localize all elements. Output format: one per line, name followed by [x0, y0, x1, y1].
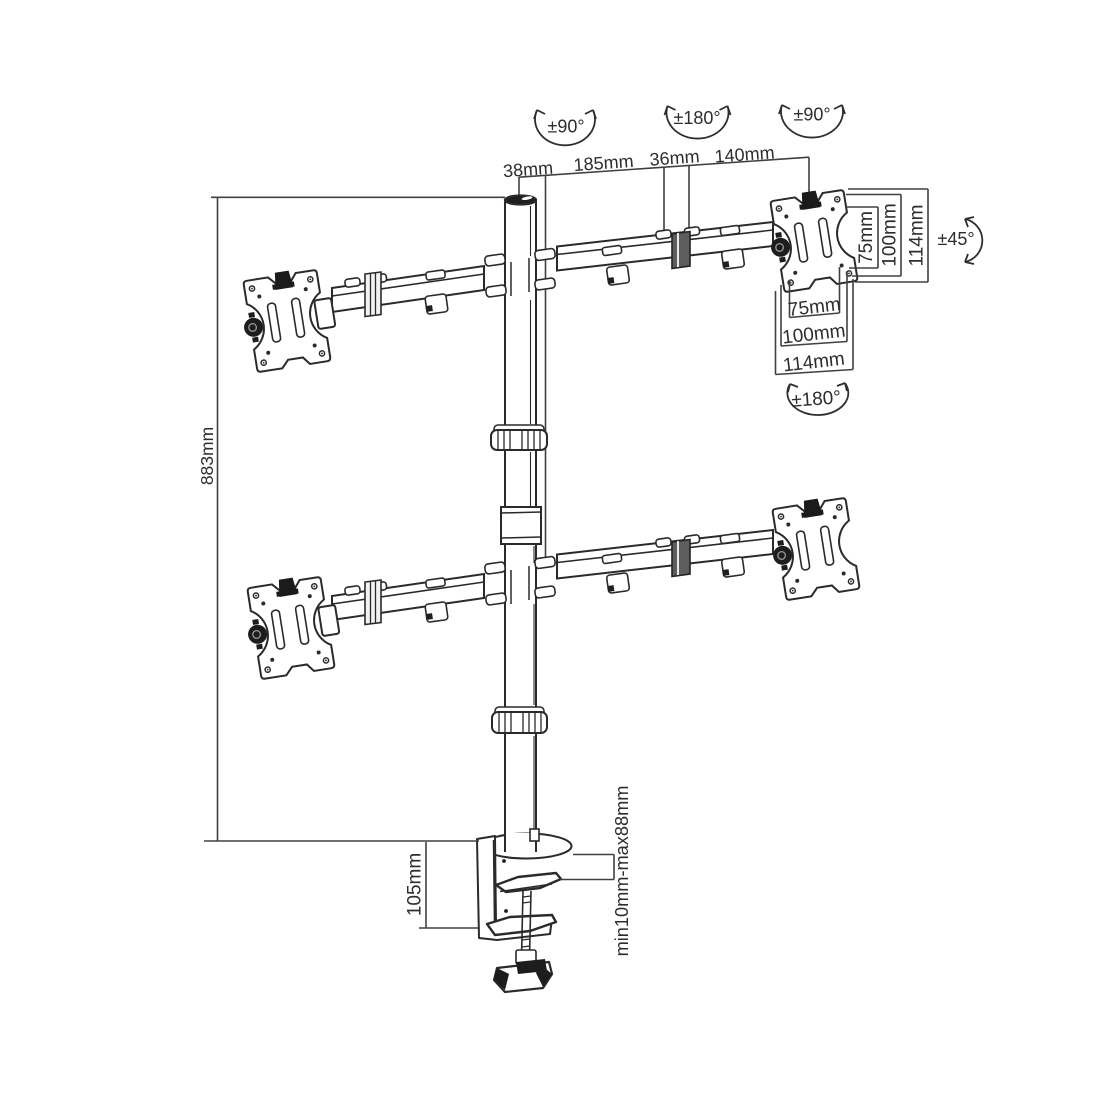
svg-text:±90°: ±90°: [547, 117, 584, 137]
svg-text:114mm: 114mm: [907, 205, 928, 267]
svg-text:min10mm-max88mm: min10mm-max88mm: [612, 786, 632, 957]
svg-text:36mm: 36mm: [649, 146, 700, 169]
svg-text:38mm: 38mm: [502, 158, 553, 181]
svg-text:±45°: ±45°: [937, 229, 974, 249]
svg-text:±90°: ±90°: [793, 105, 830, 125]
svg-text:185mm: 185mm: [573, 151, 634, 175]
svg-text:±180°: ±180°: [791, 387, 842, 411]
svg-text:75mm: 75mm: [856, 211, 877, 264]
svg-text:105mm: 105mm: [405, 853, 426, 916]
svg-text:140mm: 140mm: [714, 142, 775, 166]
svg-text:±180°: ±180°: [673, 108, 720, 128]
svg-text:100mm: 100mm: [880, 203, 901, 266]
svg-text:883mm: 883mm: [197, 427, 217, 485]
